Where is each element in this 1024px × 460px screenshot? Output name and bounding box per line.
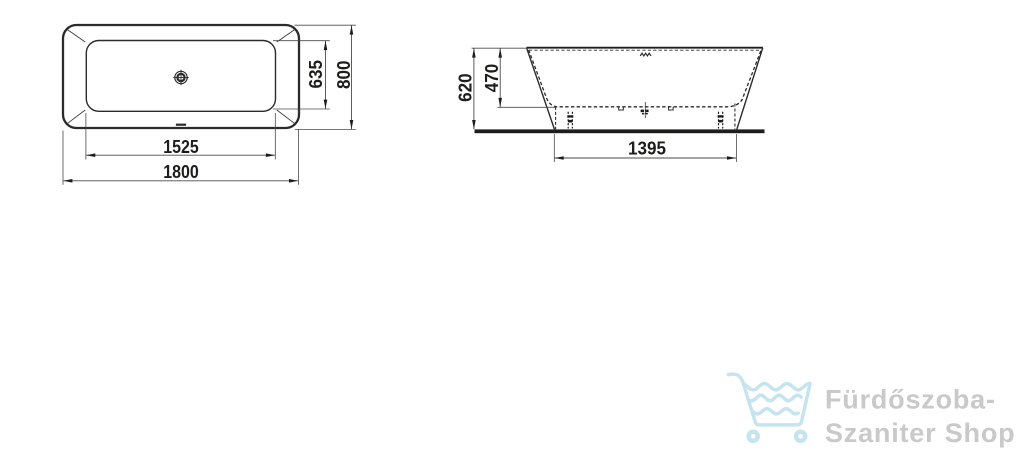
svg-text:Fürdőszoba-: Fürdőszoba- bbox=[825, 385, 996, 415]
svg-text:1800: 1800 bbox=[163, 162, 199, 182]
svg-text:1395: 1395 bbox=[628, 139, 666, 159]
svg-text:Szaniter Shop: Szaniter Shop bbox=[825, 418, 1015, 448]
svg-text:635: 635 bbox=[306, 60, 326, 89]
svg-text:620: 620 bbox=[456, 73, 476, 102]
svg-text:470: 470 bbox=[482, 64, 502, 93]
svg-text:1525: 1525 bbox=[163, 137, 199, 157]
svg-text:800: 800 bbox=[334, 61, 354, 90]
